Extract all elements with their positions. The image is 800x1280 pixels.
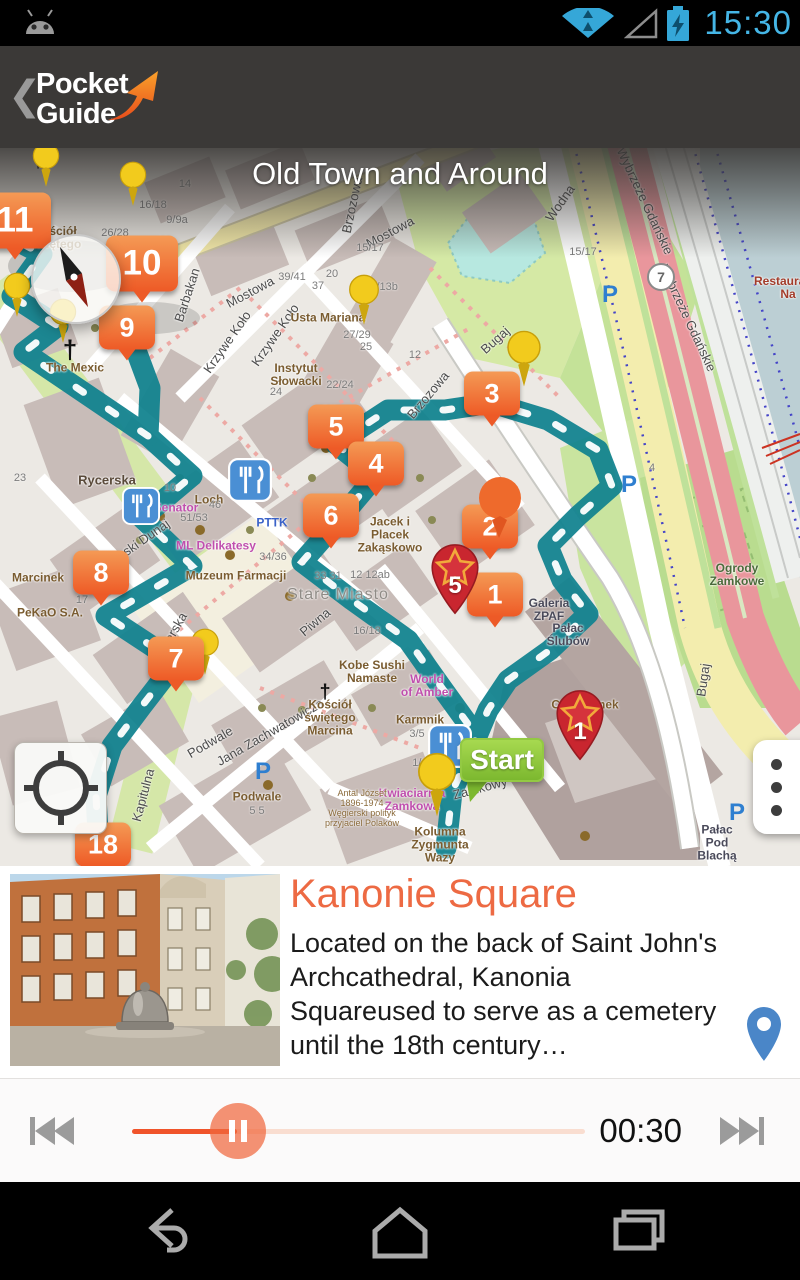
poi-pin-yellow[interactable] xyxy=(2,272,32,318)
tour-marker-4[interactable]: 4 xyxy=(348,441,404,485)
compass-indicator[interactable] xyxy=(31,234,121,324)
wifi-icon xyxy=(556,8,620,40)
house-number: 12 12ab xyxy=(350,569,390,581)
route-number-badge: 7 xyxy=(647,263,675,291)
house-number: 24 xyxy=(270,386,282,398)
house-number: 3/5 xyxy=(409,728,424,740)
parking-icon: P xyxy=(729,799,745,827)
poi-card[interactable]: Kanonie Square Located on the back of Sa… xyxy=(0,866,800,1078)
tour-marker-3[interactable]: 3 xyxy=(464,371,520,415)
tour-marker-7[interactable]: 7 xyxy=(148,636,204,680)
overflow-dot-icon xyxy=(771,782,782,793)
poi-label: Antal József 1896-1974 Węgierski polityk… xyxy=(325,788,399,828)
locate-me-button[interactable] xyxy=(14,742,107,834)
house-number: 25 xyxy=(360,341,372,353)
parking-icon: P xyxy=(602,281,618,309)
poi-label: Kolumna Zygmunta Wazy xyxy=(411,826,468,865)
house-number: 34/36 xyxy=(259,551,287,563)
overflow-dot-icon xyxy=(771,805,782,816)
parking-icon: P xyxy=(255,758,271,786)
map-canvas[interactable]: Mostowa Mostowa Brzozowa Brzozowa Wodna … xyxy=(0,148,800,866)
house-number: 23 xyxy=(14,472,26,484)
map-overflow-menu-button[interactable] xyxy=(753,740,800,834)
poi-label: Pałac Pod Blachą xyxy=(697,824,736,863)
house-number: 51/53 xyxy=(180,512,208,524)
tour-marker-6[interactable]: 6 xyxy=(303,493,359,537)
tour-title: Old Town and Around xyxy=(0,156,800,192)
restaurant-icon xyxy=(228,458,272,502)
poi-label: ML Delikatesy xyxy=(176,540,256,553)
android-notification-icon xyxy=(20,8,60,40)
house-number: 17 xyxy=(76,594,88,606)
house-number: 33 31 xyxy=(314,570,342,582)
crosshair-icon xyxy=(15,743,106,833)
poi-label: PeKaO S.A. xyxy=(17,607,83,620)
poi-label: Marcinek xyxy=(12,572,64,585)
poi-label: Galeria ZPAF xyxy=(529,597,570,623)
poi-description: Located on the back of Saint John's Arch… xyxy=(290,926,722,1062)
poi-title: Kanonie Square xyxy=(290,872,577,917)
overflow-dot-icon xyxy=(771,759,782,770)
pocketguide-arrow-logo-icon xyxy=(104,68,162,124)
pause-icon xyxy=(229,1120,235,1142)
house-number: 37 xyxy=(312,280,324,292)
android-nav-bar xyxy=(0,1182,800,1280)
poi-label: Muzeum Farmacji xyxy=(186,570,287,583)
nav-back-button[interactable] xyxy=(142,1206,194,1256)
poi-label: Restauracja Na xyxy=(754,275,800,301)
house-number: 5 5 xyxy=(249,805,264,817)
house-number: 39/41 xyxy=(278,271,306,283)
poi-label: PTTK xyxy=(256,517,287,530)
house-number: 15/17 xyxy=(569,246,597,258)
poi-photo xyxy=(10,874,280,1066)
status-bar: 15:30 xyxy=(0,0,800,46)
house-number: 4 xyxy=(649,462,655,474)
poi-label: Ogrody Zamkowe xyxy=(710,562,765,588)
poi-pin-yellow[interactable] xyxy=(415,752,459,818)
poi-label: Podwale xyxy=(233,791,282,804)
house-number: 9/9a xyxy=(166,214,187,226)
poi-pin-orange[interactable] xyxy=(474,476,526,540)
show-on-map-pin-button[interactable] xyxy=(744,1006,784,1062)
poi-pin-yellow[interactable] xyxy=(347,274,381,326)
parking-icon: P xyxy=(621,471,637,499)
house-number: 46 xyxy=(209,499,221,511)
battery-charging-icon xyxy=(664,4,692,44)
poi-label: World of Amber xyxy=(401,673,453,699)
elapsed-time: 00:30 xyxy=(599,1112,682,1150)
house-number: 10 xyxy=(164,482,176,494)
street-label: Rycerska xyxy=(78,473,136,488)
app-header: ❮ Pocket Guide xyxy=(0,46,800,149)
church-cross-icon: † xyxy=(319,682,330,705)
phone-screen: 15:30 ❮ Pocket Guide xyxy=(0,0,800,1280)
pause-button[interactable] xyxy=(210,1103,266,1159)
poi-label: Instytut Słowacki xyxy=(270,362,321,388)
poi-label: Jacek i Placek Zakąskowo xyxy=(358,516,423,555)
nav-recents-button[interactable] xyxy=(608,1206,668,1258)
house-number: 12 xyxy=(409,349,421,361)
star-marker-number: 5 xyxy=(448,572,461,600)
house-number: 16/18 xyxy=(353,625,381,637)
previous-track-button[interactable] xyxy=(28,1109,78,1153)
tour-marker-8[interactable]: 8 xyxy=(73,550,129,594)
nav-home-button[interactable] xyxy=(368,1204,432,1260)
signal-strength-icon xyxy=(624,8,660,40)
audio-player: 00:30 xyxy=(0,1078,800,1183)
pause-icon xyxy=(241,1120,247,1142)
house-number: 27/29 xyxy=(343,329,371,341)
restaurant-icon xyxy=(122,487,160,525)
house-number: 20 xyxy=(326,268,338,280)
district-label: Stare Miasto xyxy=(287,586,389,604)
compass-needle-icon xyxy=(33,236,115,318)
poi-label: Pałac Ślubów xyxy=(547,622,590,648)
house-number: 22/24 xyxy=(326,379,354,391)
poi-label: Kobe Sushi Namaste xyxy=(339,659,405,685)
house-number: 15/17 xyxy=(356,242,384,254)
star-marker-number: 1 xyxy=(573,718,586,746)
seek-bar[interactable] xyxy=(132,1129,585,1134)
clock-time: 15:30 xyxy=(704,4,792,42)
start-bubble[interactable]: Start xyxy=(460,738,544,782)
next-track-button[interactable] xyxy=(716,1109,766,1153)
